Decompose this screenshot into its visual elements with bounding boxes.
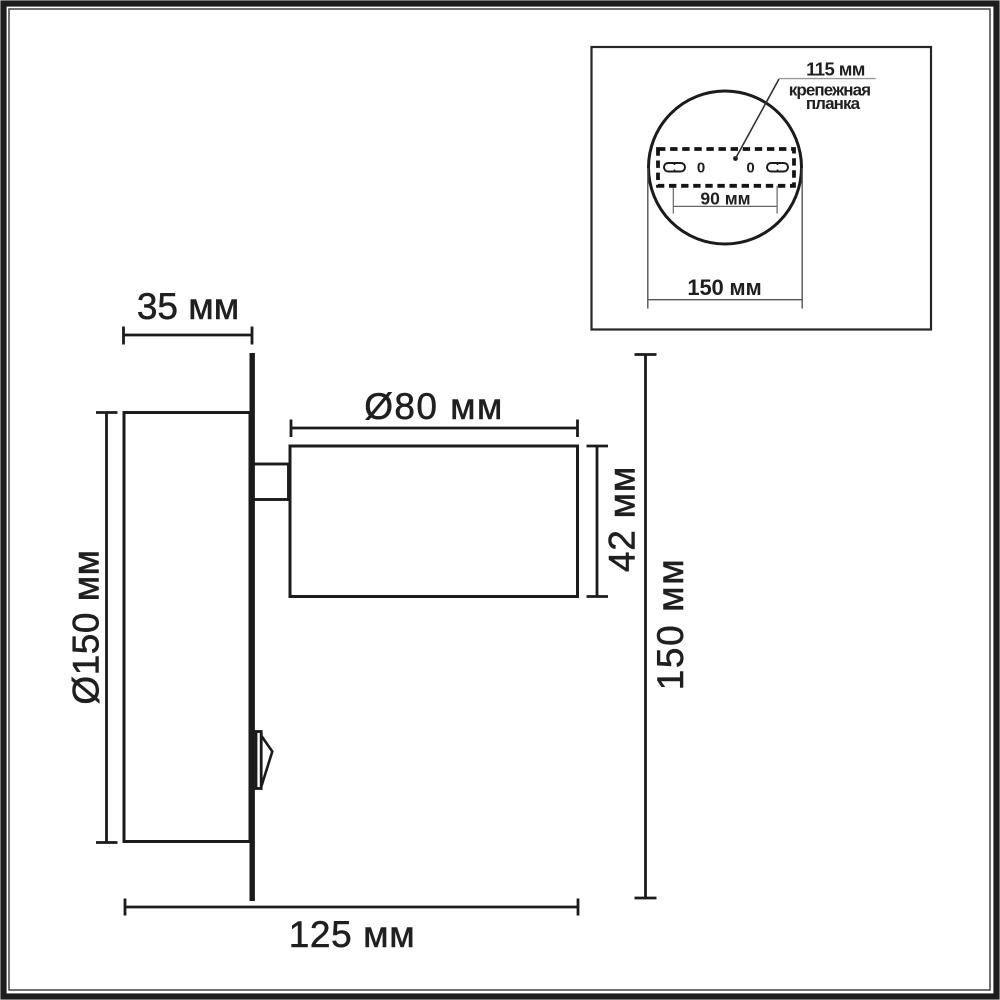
svg-text:35 мм: 35 мм [137,286,239,327]
svg-text:0: 0 [746,160,754,177]
svg-text:150 мм: 150 мм [687,275,761,300]
svg-text:90 мм: 90 мм [700,189,750,209]
svg-text:115 мм: 115 мм [806,59,865,80]
svg-text:планка: планка [806,94,861,113]
svg-text:42 мм: 42 мм [602,466,643,572]
svg-text:125 мм: 125 мм [289,914,416,955]
svg-text:0: 0 [697,160,705,177]
svg-text:150 мм: 150 мм [650,558,691,691]
svg-text:Ø80 мм: Ø80 мм [364,386,504,427]
svg-text:Ø150 мм: Ø150 мм [66,549,107,704]
